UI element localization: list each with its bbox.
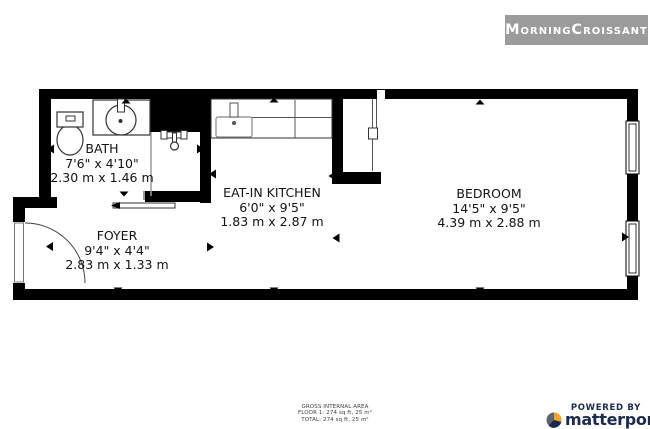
floorplan-page: BATH 7'6" x 4'10" 2.30 m x 1.46 m EAT-IN…: [0, 0, 650, 429]
room-dimensions-imperial: 9'4" x 4'4": [42, 244, 192, 259]
room-name: FOYER: [42, 229, 192, 244]
room-label-foyer: FOYER 9'4" x 4'4" 2.83 m x 1.33 m: [42, 229, 192, 273]
room-dimensions-imperial: 7'6" x 4'10": [27, 157, 177, 172]
room-dimensions-metric: 4.39 m x 2.88 m: [414, 216, 564, 231]
closet-door-icon: [369, 99, 378, 171]
room-label-bath: BATH 7'6" x 4'10" 2.30 m x 1.46 m: [27, 142, 177, 186]
room-label-bedroom: BEDROOM 14'5" x 9'5" 4.39 m x 2.88 m: [414, 187, 564, 231]
brand-name: MorningCroissant: [505, 22, 648, 38]
room-dimensions-imperial: 6'0" x 9'5": [197, 201, 347, 216]
gross-internal-area-note: GROSS INTERNAL AREA FLOOR 1: 274 sq ft, …: [250, 404, 420, 423]
room-name: BEDROOM: [414, 187, 564, 202]
room-label-kitchen: EAT-IN KITCHEN 6'0" x 9'5" 1.83 m x 2.87…: [197, 186, 347, 230]
bathroom-sink-icon: [93, 99, 150, 135]
room-name: BATH: [27, 142, 177, 157]
window-icon-top: [626, 121, 639, 174]
matterport-logo: matterport ™: [546, 411, 650, 429]
room-dimensions-metric: 1.83 m x 2.87 m: [197, 215, 347, 230]
matterport-icon: [546, 412, 562, 428]
room-name: EAT-IN KITCHEN: [197, 186, 347, 201]
matterport-wordmark: matterport: [565, 411, 650, 429]
room-dimensions-imperial: 14'5" x 9'5": [414, 202, 564, 217]
window-icon-bottom: [626, 221, 639, 276]
area-total: TOTAL: 274 sq ft, 25 m²: [250, 417, 420, 423]
room-dimensions-metric: 2.30 m x 1.46 m: [27, 171, 177, 186]
morningcroissant-logo: MorningCroissant: [505, 15, 648, 45]
room-dimensions-metric: 2.83 m x 1.33 m: [42, 258, 192, 273]
